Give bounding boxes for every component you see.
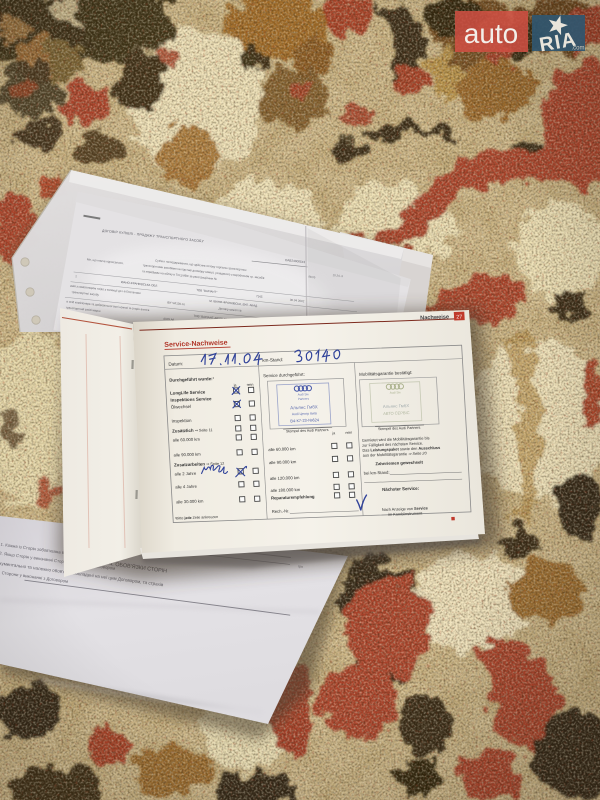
svg-text:auto: auto — [464, 18, 519, 49]
svg-text:.com: .com — [571, 46, 584, 52]
